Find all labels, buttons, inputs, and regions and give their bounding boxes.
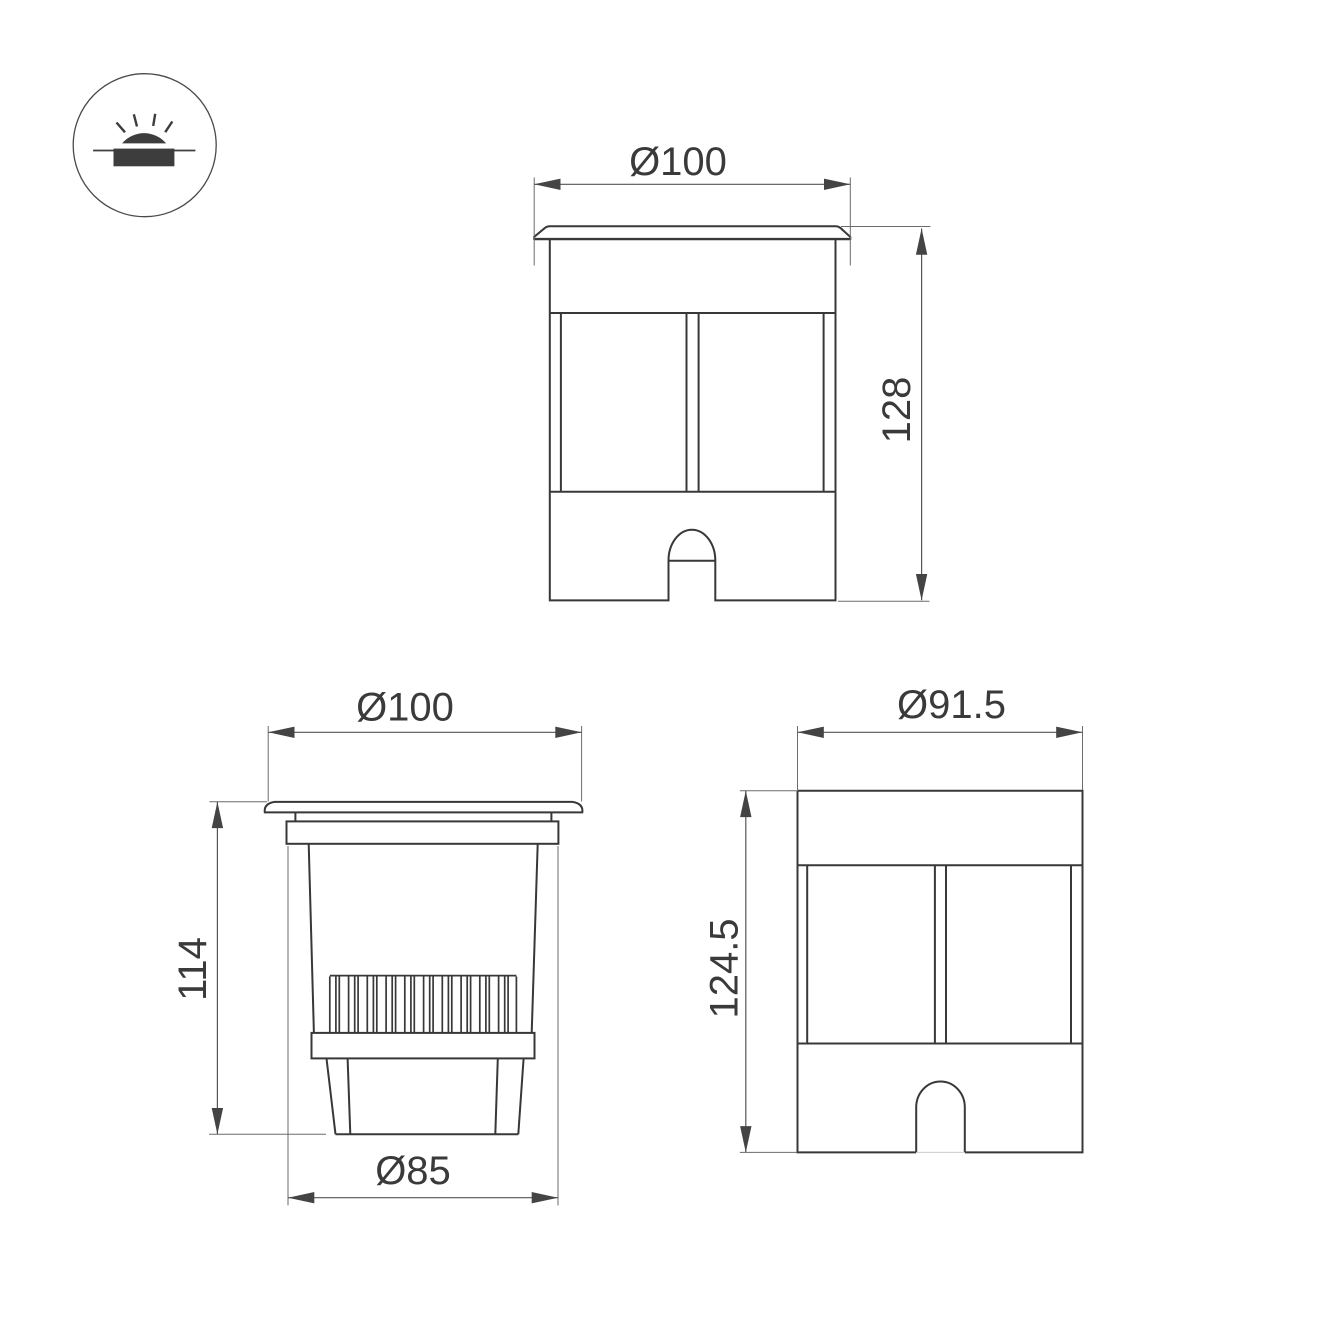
svg-text:Ø85: Ø85	[375, 1149, 451, 1193]
svg-text:124.5: 124.5	[703, 918, 747, 1018]
svg-text:Ø100: Ø100	[356, 686, 454, 730]
svg-text:114: 114	[171, 937, 215, 1001]
svg-text:128: 128	[875, 377, 919, 444]
svg-text:Ø100: Ø100	[629, 140, 727, 184]
svg-text:Ø91.5: Ø91.5	[897, 683, 1006, 727]
